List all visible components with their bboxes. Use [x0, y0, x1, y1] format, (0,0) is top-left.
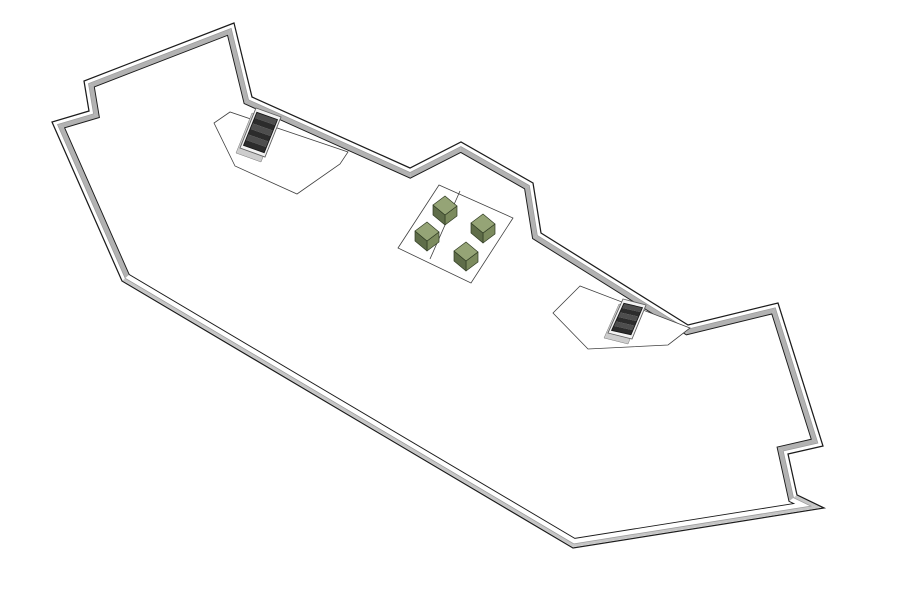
roof-outer-edge: [52, 23, 824, 548]
model-viewport[interactable]: [0, 0, 898, 602]
roof-slab-with-parapet: [52, 23, 824, 548]
roof-plan-3d-view[interactable]: [0, 0, 898, 602]
